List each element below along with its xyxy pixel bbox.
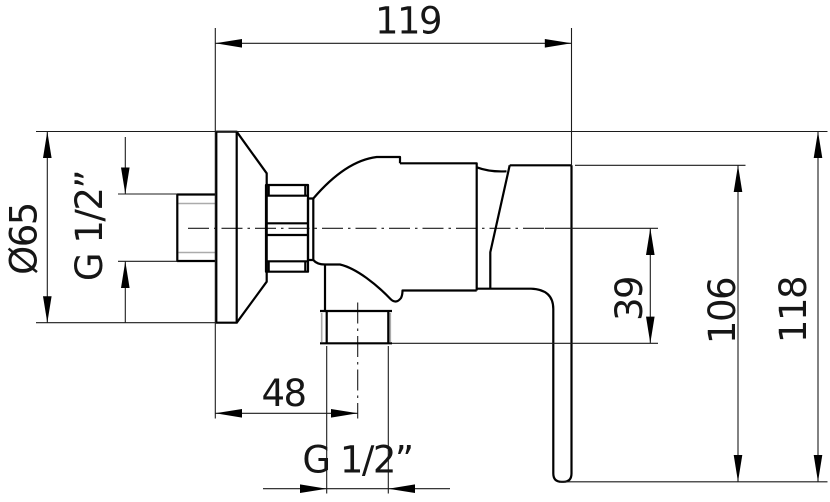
dim-label-65: Ø65 <box>3 203 46 275</box>
collar <box>308 199 313 261</box>
dim-label-118: 118 <box>772 277 815 343</box>
dim-label-inlet-thread: G 1/2” <box>68 171 111 281</box>
dim-inlet-thread: G 1/2” <box>68 137 177 323</box>
dim-label-39: 39 <box>608 277 651 321</box>
dim-width-119: 119 <box>215 0 571 419</box>
cartridge-body <box>400 163 477 290</box>
arrowhead-top <box>734 165 743 192</box>
dim-label-106: 106 <box>701 278 744 344</box>
arrowhead-bottom <box>43 296 52 323</box>
arrowhead-right <box>331 409 358 418</box>
arrowhead-top <box>646 228 655 255</box>
arrowhead-right <box>388 484 415 493</box>
faucet-technical-drawing: 119 Ø65 G 1/2” 39 106 <box>0 0 830 502</box>
cap-seam <box>477 167 507 171</box>
arrowhead-lower <box>121 261 130 288</box>
arrowhead-right <box>545 39 572 48</box>
dim-outlet-offset-48: 48 <box>215 372 357 418</box>
arrowhead-upper <box>121 168 130 195</box>
body-dome-lower <box>313 260 476 302</box>
body-dome-upper <box>313 157 400 199</box>
arrowhead-top <box>814 132 823 159</box>
extension-lines <box>118 194 177 261</box>
arrowhead-bottom <box>814 455 823 482</box>
arrowhead-top <box>43 132 52 159</box>
outlet-thread-lines <box>322 313 391 342</box>
dim-outlet-thread: G 1/2” <box>263 346 450 494</box>
dim-label-119: 119 <box>375 0 441 43</box>
handle-skirt <box>477 289 554 309</box>
arrowhead-bottom <box>734 455 743 482</box>
faucet-outline <box>177 132 571 482</box>
dim-label-outlet-thread: G 1/2” <box>302 439 412 482</box>
wall-flange-cone <box>237 132 267 323</box>
arrowhead-left <box>215 409 242 418</box>
dim-label-48: 48 <box>261 372 305 415</box>
dim-outlet-drop-39: 39 <box>392 228 658 343</box>
dim-total-height-118: 118 <box>772 132 822 482</box>
centerlines <box>188 228 545 418</box>
wall-flange-plate <box>216 132 236 323</box>
handle-slant-edge <box>490 165 509 288</box>
handle-lever-bar <box>553 165 571 482</box>
arrowhead-left <box>300 484 327 493</box>
arrowhead-left <box>215 39 242 48</box>
